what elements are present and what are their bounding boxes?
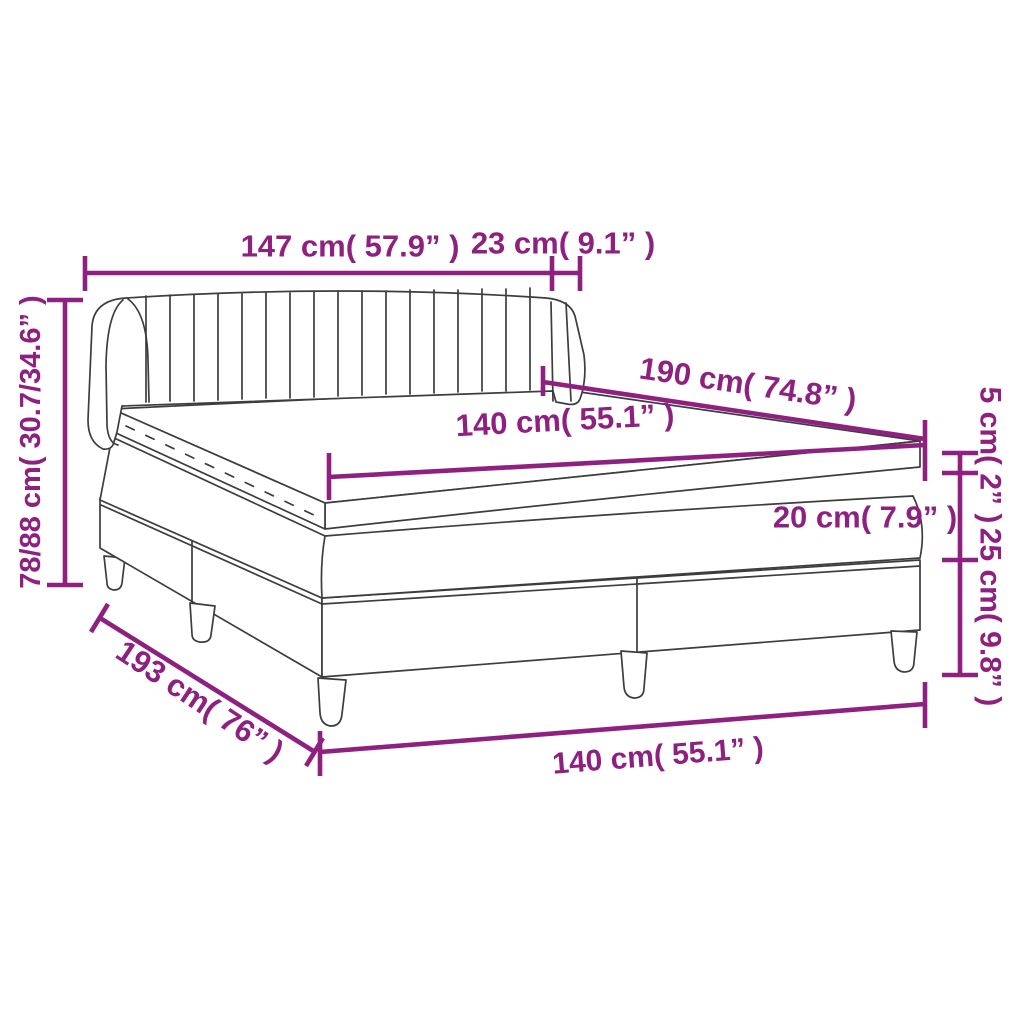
dim-overall-height-line: [47, 300, 83, 585]
mattress-thickness-label: 20 cm( 7.9” ): [773, 500, 957, 535]
overall-length-label: 193 cm( 76” ): [110, 633, 290, 769]
bed-diagram-canvas: 147 cm( 57.9” ) 23 cm( 9.1” ) 78/88 cm( …: [0, 0, 1024, 1024]
bed-leg-front-middle: [621, 651, 647, 698]
dim-right-heights-line: [942, 453, 978, 675]
topper-thickness-label: 5 cm( 2” ): [974, 387, 1007, 524]
headboard-wing-depth-label: 23 cm( 9.1” ): [471, 226, 655, 261]
headboard-width-label: 147 cm( 57.9” ): [241, 229, 460, 264]
dimension-diagram: 147 cm( 57.9” ) 23 cm( 9.1” ) 78/88 cm( …: [0, 0, 1024, 1024]
bed-leg-mid-left: [190, 603, 215, 642]
bed-leg-front-right: [891, 631, 917, 672]
bed-leg-front-left: [318, 678, 346, 726]
overall-height-label: 78/88 cm( 30.7/34.6” ): [15, 295, 47, 588]
bed-width-bottom-label: 140 cm( 55.1” ): [551, 731, 765, 781]
base-height-label: 25 cm( 9.8” ): [974, 528, 1007, 706]
